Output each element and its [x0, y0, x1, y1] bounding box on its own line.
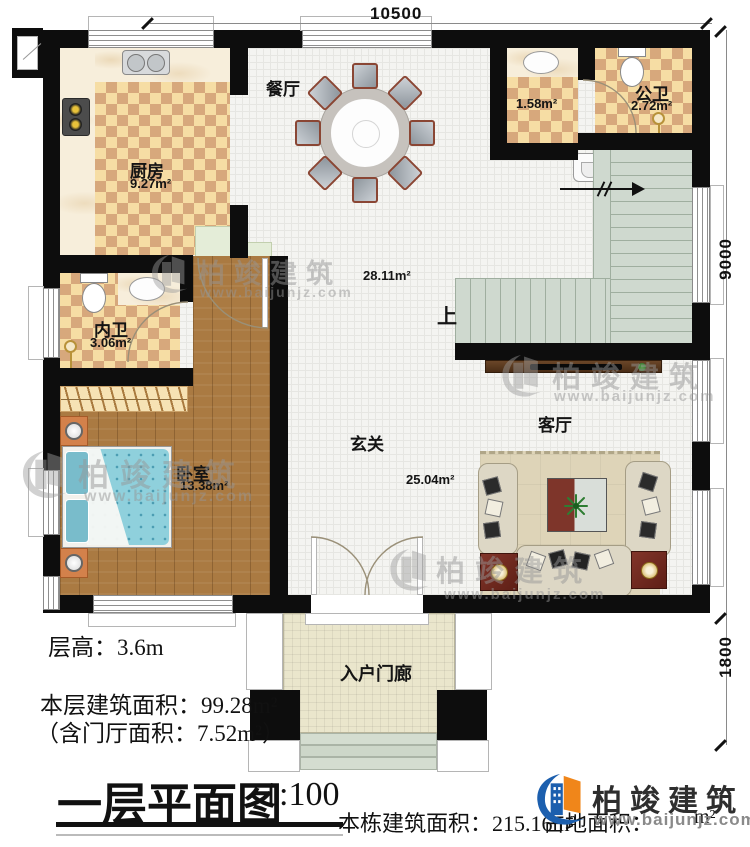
window-sill	[88, 613, 236, 627]
table-lamp	[641, 562, 658, 579]
public-bath-area: 2.72m²	[631, 98, 672, 113]
stove-burner	[69, 118, 82, 131]
brand-logo-icon	[532, 772, 588, 832]
window-sill	[28, 286, 44, 360]
hall-area-label: 28.11m²	[363, 268, 411, 283]
porch-step	[300, 757, 437, 770]
coffee-table	[547, 478, 607, 532]
dining-label: 餐厅	[266, 75, 300, 100]
wall-bedroom-right	[270, 256, 288, 595]
kitchen-window	[88, 30, 214, 48]
wall-private-bath-bottom	[43, 368, 193, 386]
nightstand-lamp	[65, 422, 83, 440]
wash-area-label: 1.58m²	[516, 96, 557, 111]
floor-height-note: 层高：3.6m	[48, 628, 164, 662]
plan-scale: 1:100	[262, 776, 339, 814]
dimension-top-label: 10500	[370, 4, 422, 24]
dining-window	[302, 30, 432, 48]
dimension-tick	[714, 612, 727, 625]
kitchen-stove	[62, 98, 90, 136]
wall-wash-bottom	[490, 143, 578, 160]
wall-baths-divider	[578, 48, 595, 80]
flue-inner	[17, 36, 38, 70]
dimension-tick	[714, 25, 727, 38]
porch-railing	[455, 613, 492, 690]
sofa-pillow	[485, 499, 504, 518]
porch-column	[437, 690, 487, 740]
watermark-logo-icon	[148, 252, 190, 300]
bedroom-corner-window	[43, 576, 60, 610]
side-table	[631, 551, 667, 589]
watermark-url: www.baijunjz.com	[444, 586, 605, 603]
nightstand-lamp	[65, 554, 83, 572]
entry-door-leaf	[311, 537, 317, 595]
wall-wash-left	[490, 30, 507, 160]
wash-sink	[523, 51, 559, 74]
wall-kitchen-dining-upper	[230, 30, 248, 95]
watermark-brand: 柏竣建筑	[436, 548, 592, 590]
watermark-url: www.baijunjz.com	[554, 388, 715, 405]
dining-chair	[409, 120, 435, 146]
dining-chair	[352, 177, 378, 203]
brand-logo-url: www.baijunjz.com	[594, 810, 750, 830]
living-label: 客厅	[538, 411, 572, 436]
toilet	[618, 47, 646, 57]
title-underline-thin	[56, 834, 343, 836]
porch-column-base	[437, 740, 489, 772]
kitchen-area: 9.27m²	[130, 176, 171, 191]
stairs-up-label: 上	[437, 300, 457, 329]
wardrobe	[60, 386, 188, 412]
kitchen-counter-left	[60, 48, 95, 255]
dining-chair	[295, 120, 321, 146]
toilet-bowl	[82, 283, 106, 313]
stair-direction-line	[560, 188, 632, 190]
watermark-logo-icon	[18, 448, 70, 506]
porch-step	[300, 745, 437, 757]
porch-label: 入户门廊	[340, 660, 412, 686]
foyer-area-note: （含门厅面积：7.52m²）	[36, 714, 285, 748]
kitchen-sink-bowl	[127, 54, 145, 72]
dining-chair	[352, 63, 378, 89]
shower-stem	[70, 352, 72, 368]
foyer-label: 玄关	[350, 430, 384, 455]
stair-flight-lower	[455, 278, 610, 343]
toilet	[80, 273, 108, 283]
foyer-area: 25.04m²	[406, 472, 454, 487]
plant-icon	[562, 492, 590, 520]
private-bath-window	[43, 288, 60, 358]
porch-railing	[246, 613, 283, 690]
bedroom-window	[93, 595, 233, 613]
dimension-right-upper-label: 9000	[716, 238, 736, 280]
nightstand	[60, 548, 88, 578]
kitchen-sink	[122, 50, 170, 75]
living-window-lower	[692, 490, 710, 585]
private-bath-area: 3.06m²	[90, 335, 131, 350]
dining-table-center	[352, 120, 380, 148]
nightstand	[60, 416, 88, 446]
porch-step	[300, 733, 437, 745]
dimension-right-lower-label: 1800	[716, 636, 736, 678]
floor-plan-canvas: 10500 9000 1800 厨房 9.27m² 餐厅 1.58m² 公卫 2…	[0, 0, 750, 847]
watermark-url: www.baijunjz.com	[84, 488, 254, 506]
watermark-logo-icon	[386, 546, 432, 598]
sofa-pillow	[483, 521, 501, 539]
stove-burner	[69, 103, 82, 116]
window-sill	[710, 488, 724, 587]
stair-direction-arrow	[632, 182, 645, 196]
stair-flight-upper	[610, 150, 692, 343]
kitchen-sink-bowl	[147, 54, 165, 72]
dimension-tick	[714, 739, 727, 752]
title-underline	[56, 822, 343, 827]
wall-kitchen-dining-lower	[230, 205, 248, 258]
entry-threshold	[305, 613, 429, 625]
sofa-pillow	[639, 521, 657, 539]
watermark-logo-icon	[498, 352, 544, 404]
dimension-line-top	[150, 23, 712, 24]
wall-public-bath-bottom	[578, 133, 710, 150]
stair-window	[692, 187, 710, 303]
watermark-url: www.baijunjz.com	[200, 284, 353, 300]
